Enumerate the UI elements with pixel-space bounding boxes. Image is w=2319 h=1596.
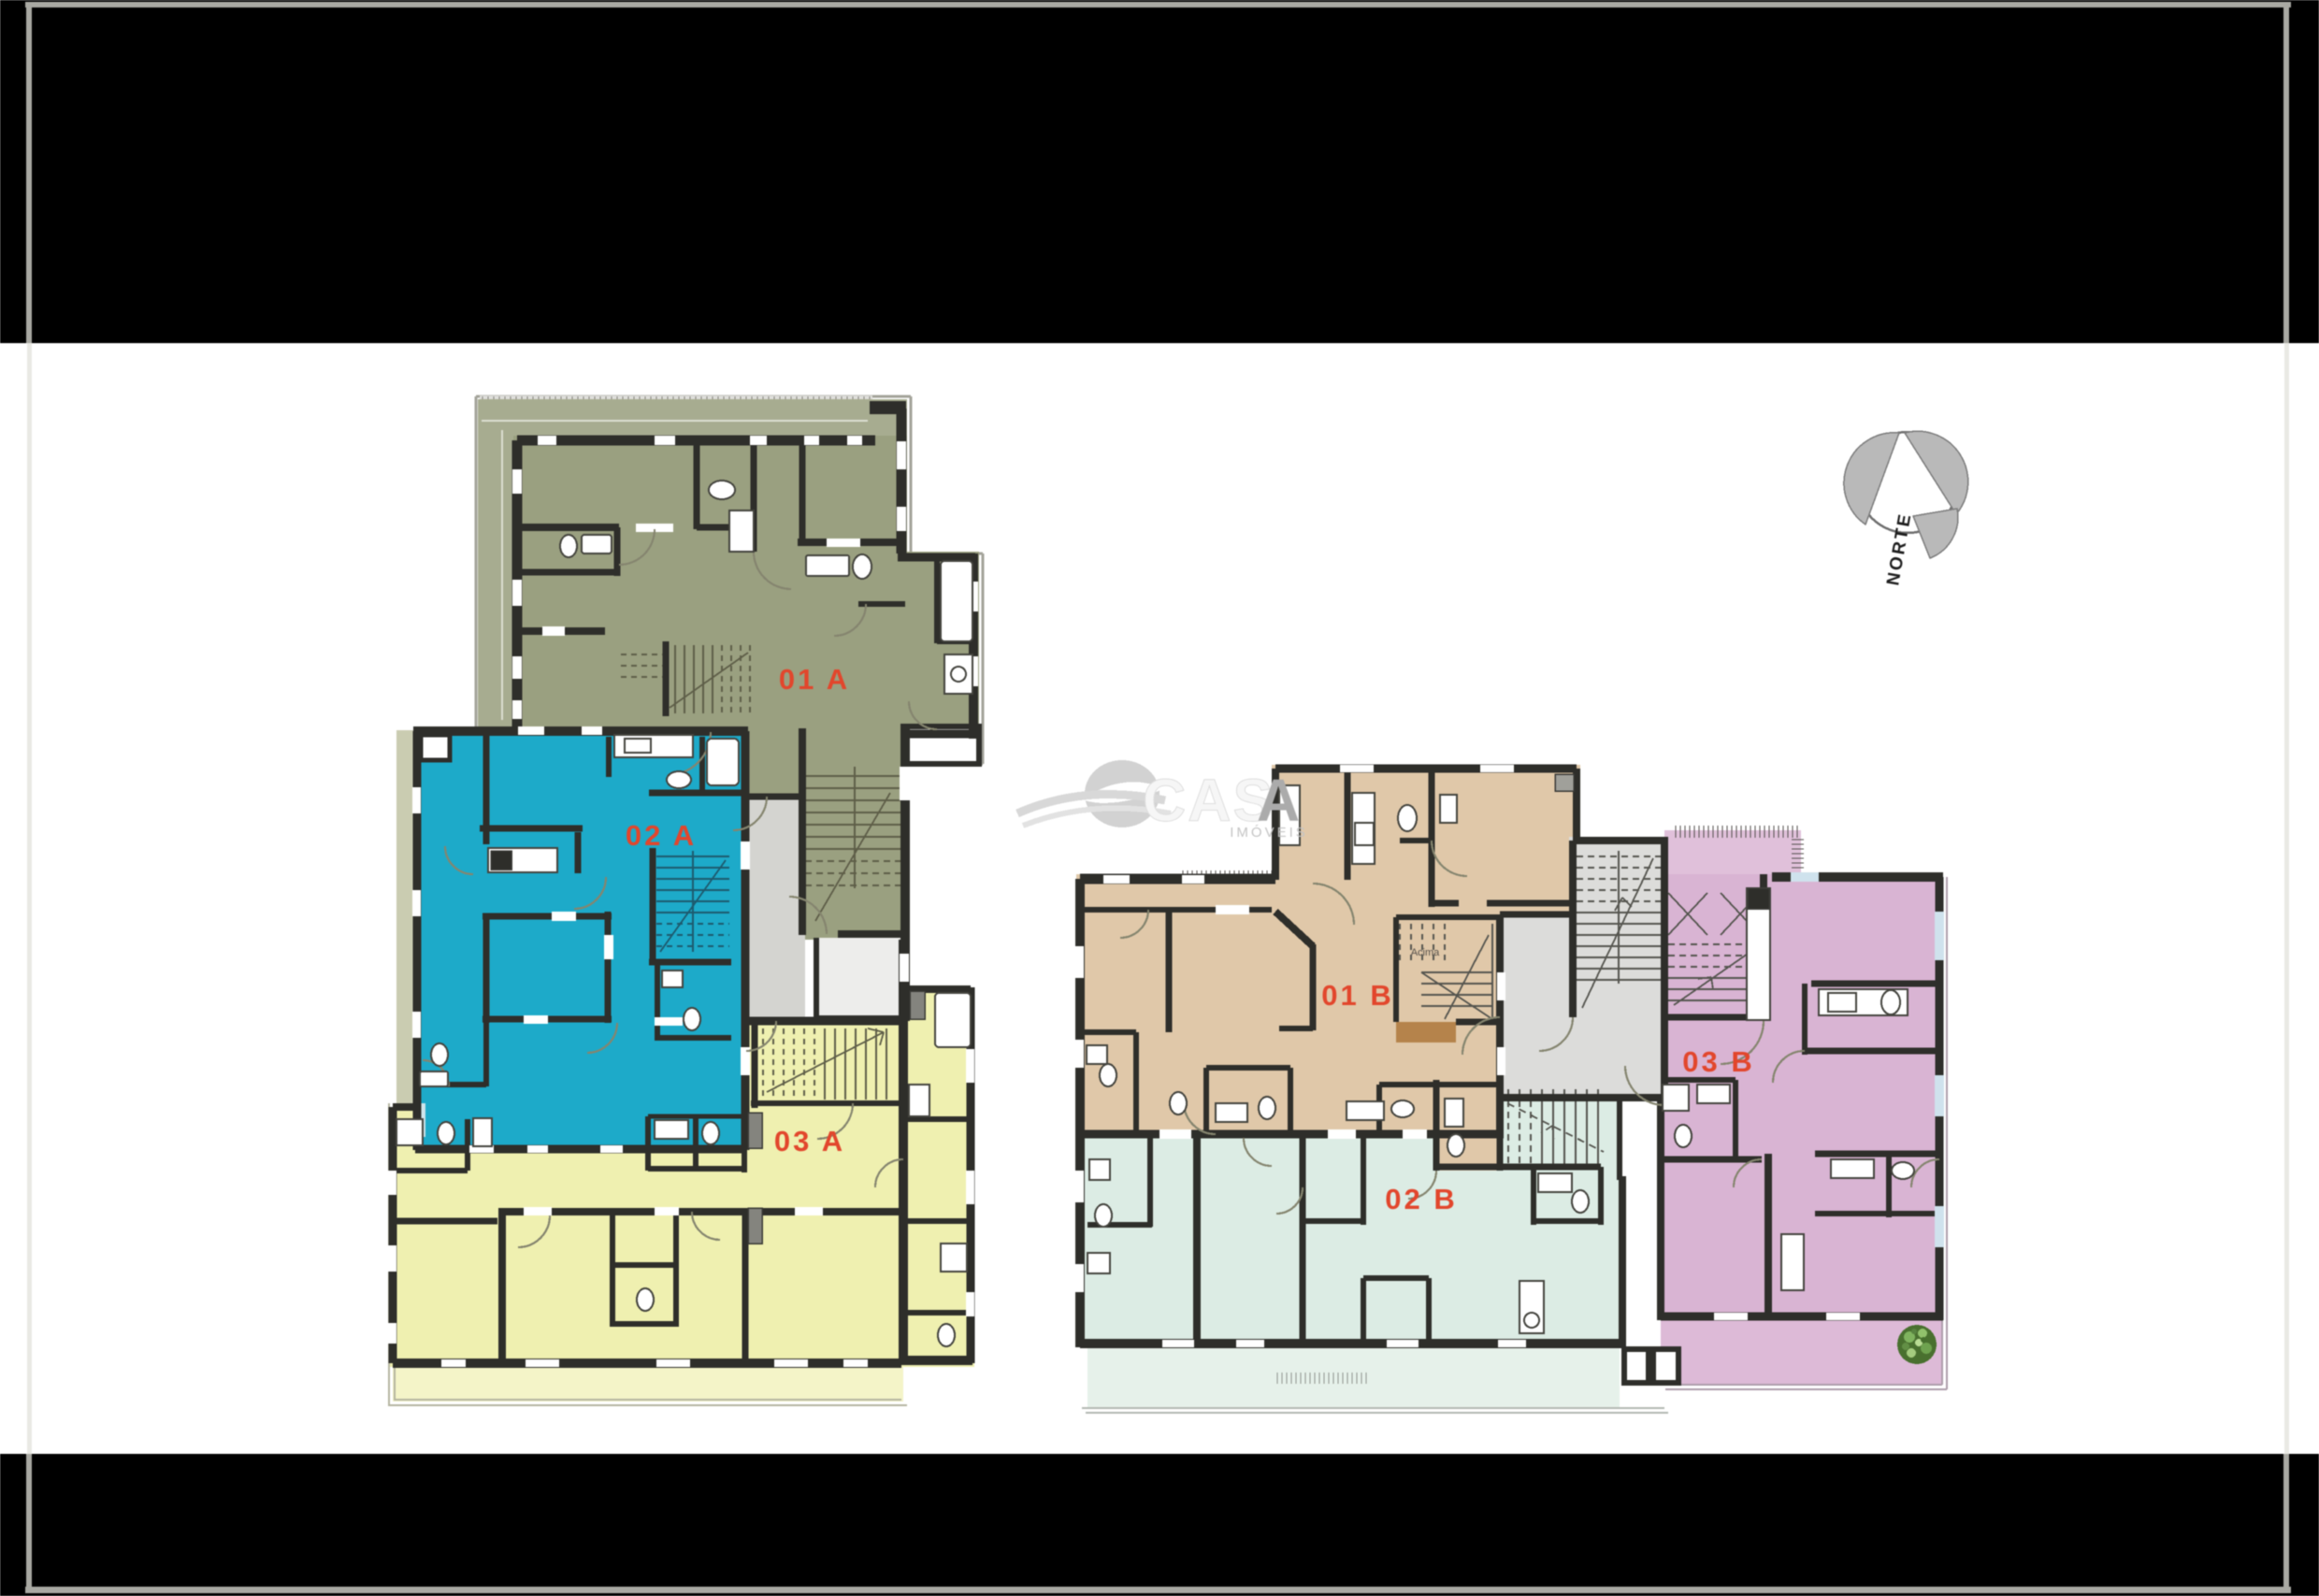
svg-text:01 B: 01 B (1321, 979, 1393, 1012)
svg-text:02 B: 02 B (1385, 1183, 1457, 1215)
svg-text:02 A: 02 A (626, 819, 697, 852)
svg-text:03 B: 03 B (1682, 1045, 1754, 1078)
svg-text:Acima: Acima (1411, 947, 1440, 958)
svg-text:01 A: 01 A (779, 663, 850, 696)
svg-text:03 A: 03 A (774, 1125, 845, 1157)
svg-text:IMÓVEIS: IMÓVEIS (1230, 825, 1308, 841)
